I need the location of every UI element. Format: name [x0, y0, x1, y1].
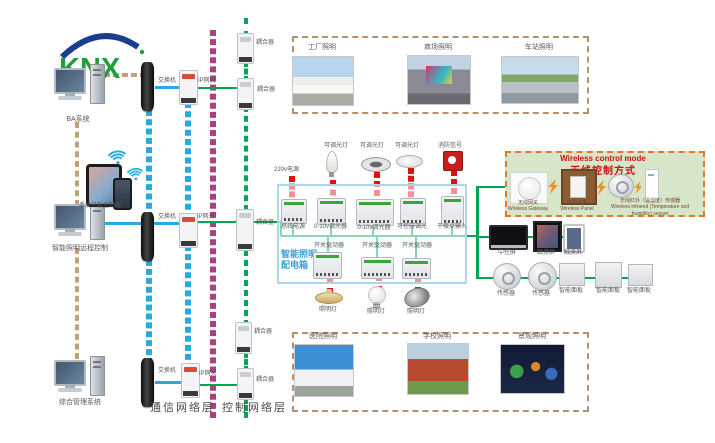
label-touch-screen-1: 触摸屏 — [531, 250, 561, 257]
photo-mall-lighting — [407, 55, 471, 105]
ceiling-lamp-icon — [315, 292, 343, 304]
photo-hospital-lighting — [294, 344, 354, 397]
module-scr-dimmer-icon — [400, 198, 426, 226]
module-dry-contact-icon — [441, 196, 464, 226]
label-bus-power: 总线电源 — [277, 224, 309, 231]
label-ip-gateway-2: IP网关 — [197, 214, 215, 221]
knx-lighting-system-diagram: 工厂照明 商场照明 车站照明 医院照明 学校照明 景观照明 KNX BA系统 智… — [0, 0, 715, 443]
label-fire-signal: 消防信号 — [438, 143, 462, 150]
zone-label-school: 学校照明 — [412, 333, 462, 341]
oval-ceiling-lamp-icon — [396, 155, 423, 168]
label-coupler-5: 耦合器 — [256, 377, 274, 384]
coupler-icon-2 — [237, 78, 254, 110]
label-wireless-panel: 无线面板 Wireless Panel — [556, 200, 598, 213]
zone-label-station: 车站照明 — [514, 44, 564, 52]
label-mobile-control: 手机平板控制端 — [72, 203, 128, 210]
label-coupler-1: 耦合器 — [256, 40, 274, 47]
module-bus-power-icon — [281, 199, 307, 224]
coupler-icon-1 — [237, 33, 254, 64]
downlight-icon — [361, 157, 391, 172]
label-wireless-gateway: 无线网关 Wireless Gateway — [506, 200, 550, 213]
switch-icon-1 — [141, 62, 154, 111]
module-dimmer2-icon — [356, 199, 394, 226]
ip-gateway-icon-2 — [179, 213, 198, 248]
wireless-link-icon — [548, 179, 559, 194]
coupler-icon-5 — [237, 368, 254, 400]
label-coupler-3: 耦合器 — [256, 220, 274, 227]
label-smart-panel-2: 智能面板 — [593, 288, 623, 295]
label-communication-layer: 通信网络层 — [150, 399, 215, 415]
distribution-box-title: 智能照明 配电箱 — [281, 249, 317, 272]
branch-row2-a — [476, 277, 494, 279]
label-touch-screen-2: 触摸屏 — [559, 250, 587, 257]
photo-station-lighting — [501, 56, 579, 104]
ip-gateway-icon-3 — [181, 363, 200, 398]
label-ip-gateway-3: IP网关 — [199, 371, 217, 378]
label-dry-contact: 干接点输入 — [436, 224, 468, 231]
computer-management-icon — [54, 354, 106, 400]
switch-chain-line-2 — [146, 260, 152, 364]
smart-panel-icon-1 — [559, 263, 585, 286]
gateway-chain-line-2 — [185, 245, 191, 369]
distribution-box-title-line1: 智能照明 — [281, 249, 317, 260]
mgmt-line-vertical-2 — [75, 248, 79, 359]
label-management-system: 综合管理系统 — [46, 399, 114, 407]
central-screen-icon — [489, 225, 528, 250]
zone-label-factory: 工厂照明 — [297, 44, 347, 52]
label-sensor-2: 传感器 — [527, 291, 555, 298]
label-wireless-sensor: 无线红外（温湿度）传感器 Wireless infrared (Temperat… — [600, 198, 700, 217]
switch-actuator-icon-2 — [361, 257, 394, 279]
coupler-icon-3 — [236, 209, 254, 251]
ip-gateway-icon-1 — [179, 70, 198, 105]
knx-bus-row1 — [195, 87, 240, 89]
knx-backbone-seg4 — [244, 250, 248, 326]
label-dimmable-lamp-3: 可调光灯 — [395, 143, 419, 150]
smart-panel-icon-3 — [628, 264, 653, 286]
label-coupler-4: 耦合器 — [254, 329, 272, 336]
knx-bus-row3 — [197, 384, 240, 386]
zone-label-hospital: 医院照明 — [298, 333, 348, 341]
label-switch-1: 交换机 — [158, 78, 176, 85]
label-central-screen: 中控屏 — [491, 250, 523, 257]
photo-factory-lighting — [292, 56, 354, 106]
label-220v-power: 220v电源 — [274, 167, 299, 174]
touch-screen-icon-1 — [533, 221, 562, 252]
knx-backbone-seg3 — [244, 106, 248, 211]
label-dimmable-lamp-2: 可调光灯 — [360, 143, 384, 150]
label-lamp-3: 照明灯 — [402, 309, 430, 316]
label-smart-panel-3: 智能面板 — [624, 288, 654, 295]
candle-lamp-icon — [326, 151, 338, 173]
sensor-icon-2 — [528, 262, 557, 291]
gateway-chain-line-1 — [185, 102, 191, 219]
right-bus-vertical — [476, 186, 479, 278]
zone-label-landscape: 景观照明 — [507, 333, 557, 341]
label-switch-2: 交换机 — [158, 214, 176, 221]
switch-chain-line-1 — [146, 110, 152, 218]
coupler-icon-4 — [235, 322, 252, 354]
photo-school-lighting — [407, 343, 469, 395]
spot-lamp-icon — [402, 284, 433, 310]
touch-screen-icon-2 — [563, 224, 585, 253]
label-switch-3: 交换机 — [158, 368, 176, 375]
mgmt-line-vertical-1 — [75, 122, 79, 206]
branch-to-wireless — [476, 186, 506, 188]
computer-ba-system-icon — [54, 62, 106, 108]
label-coupler-2: 耦合器 — [257, 87, 275, 94]
label-dimmer1: 0-10v调光器 — [309, 224, 352, 231]
label-dimmable-lamp-1: 可调光灯 — [324, 143, 348, 150]
switch-icon-2 — [141, 212, 154, 261]
ethernet-line-row1 — [155, 86, 180, 89]
label-scr-dimmer: 可控硅调光 — [395, 224, 429, 231]
bulb-lamp-icon — [368, 286, 386, 304]
label-smart-panel-1: 智能面板 — [556, 288, 586, 295]
label-switch-actuator-3: 开关驱动器 — [400, 243, 434, 250]
label-dimmer2: 0-10v调光器 — [352, 225, 396, 232]
label-sensor-1: 传感器 — [492, 291, 520, 298]
label-lighting-remote-control: 智能照明远程控制 — [40, 245, 120, 253]
switch-actuator-icon-1 — [313, 252, 342, 279]
distribution-box-title-line2: 配电箱 — [281, 260, 317, 271]
module-dimmer1-icon — [317, 198, 346, 225]
smart-panel-icon-2 — [595, 262, 622, 288]
label-lamp-2: 照明灯 — [362, 309, 390, 316]
label-control-layer: 控制网络层 — [222, 399, 287, 415]
label-switch-actuator-1: 开关驱动器 — [312, 243, 346, 250]
wireless-link-icon — [596, 180, 607, 195]
label-ip-gateway-1: IP网关 — [198, 78, 216, 85]
wireless-ir-sensor-icon — [608, 174, 634, 198]
ethernet-line-row3 — [155, 381, 182, 384]
switch-actuator-icon-3 — [402, 258, 431, 279]
fire-alarm-icon — [443, 151, 463, 171]
photo-landscape-lighting — [500, 344, 565, 394]
sensor-icon-1 — [493, 263, 521, 290]
zone-label-mall: 商场照明 — [413, 44, 463, 52]
label-lamp-1: 照明灯 — [314, 307, 342, 314]
wireless-link-icon — [634, 181, 643, 194]
label-switch-actuator-2: 开关驱动器 — [360, 243, 394, 250]
label-ba-system: BA系统 — [50, 116, 106, 124]
